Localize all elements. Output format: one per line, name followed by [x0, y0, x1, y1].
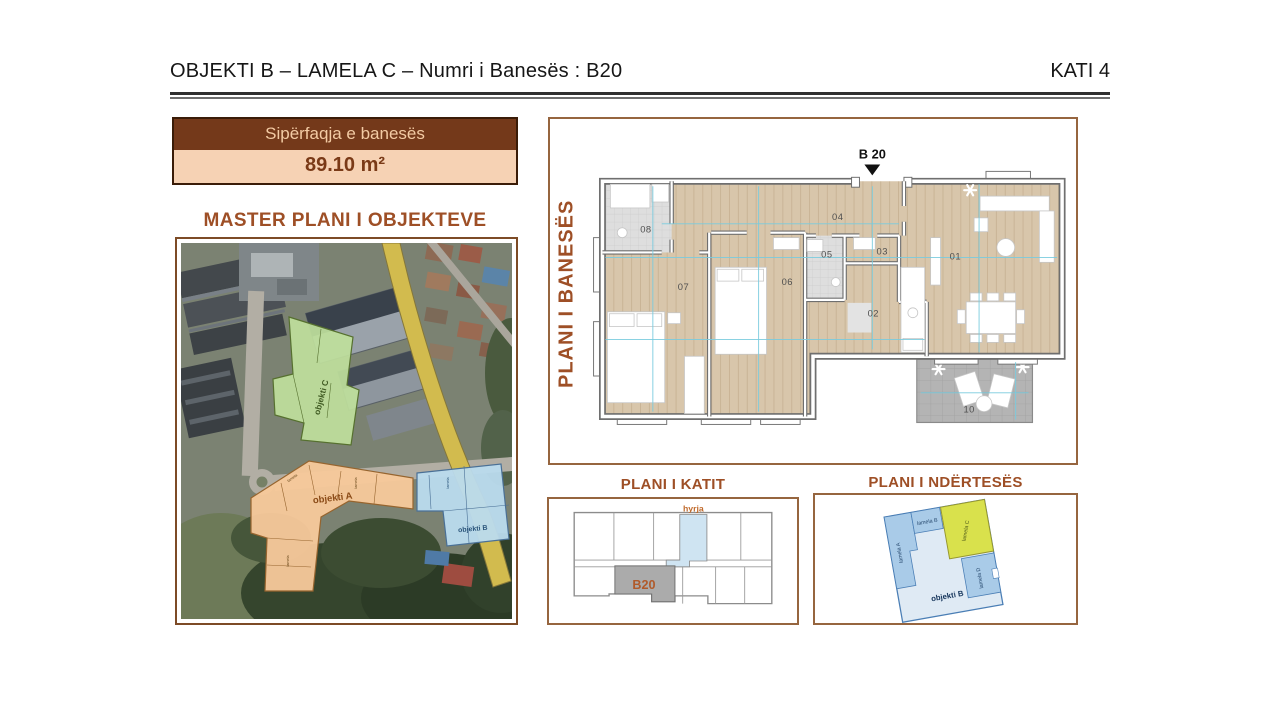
room-label-02: 02	[868, 308, 879, 319]
map-microlabel-lamela: lamela	[446, 477, 450, 489]
floor-label: KATI 4	[1040, 60, 1110, 83]
unit-marker-label: B 20	[859, 147, 886, 162]
room-label-04: 04	[832, 211, 843, 222]
room-label-10: 10	[963, 404, 974, 415]
floor-plan-drawing: hyrja B20	[549, 499, 797, 623]
header-rule-thin	[170, 97, 1110, 99]
room-label-07: 07	[678, 281, 689, 292]
area-box-label: Sipërfaqja e banesës	[174, 119, 516, 150]
room-label-01: 01	[950, 250, 961, 261]
header-rule-thick	[170, 92, 1110, 95]
unit-b20-label: B20	[632, 578, 655, 592]
floor-plan-title: PLANI I KATIT	[547, 476, 799, 493]
room-label-03: 03	[876, 245, 887, 256]
satellite-map: objekti C objekti A lamela lamela lamela…	[181, 243, 512, 619]
entrance-arrow-icon	[864, 164, 880, 175]
room-label-08: 08	[640, 224, 651, 235]
map-microlabel-lamela: lamela	[354, 477, 358, 489]
floor-plan-panel: hyrja B20	[547, 497, 799, 625]
building-plan-title: PLANI I NDËRTESËS	[813, 474, 1078, 491]
entrance-label: hyrja	[683, 504, 704, 514]
room-label-06: 06	[782, 276, 793, 287]
map-microlabel-lamela: lamela	[286, 555, 290, 567]
page-title: OBJEKTI B – LAMELA C – Numri i Banesës :…	[170, 60, 622, 83]
master-plan-title: MASTER PLANI I OBJEKTEVE	[172, 210, 518, 232]
building-plan-drawing: lamela A lamela B lamela C lamela D obje…	[815, 495, 1076, 623]
apartment-plan-panel: PLANI I BANESËS	[548, 117, 1078, 465]
room-label-05: 05	[821, 248, 832, 259]
area-box-value: 89.10 m²	[174, 150, 516, 183]
building-plan-panel: lamela A lamela B lamela C lamela D obje…	[813, 493, 1078, 625]
apartment-floor-plan: 01 02 03 04 05 06 07 08 10 B 20	[550, 119, 1076, 463]
building-plan-group: lamela A lamela B lamela C lamela D obje…	[884, 499, 1004, 622]
unit-entrance-marker: B 20	[859, 147, 886, 176]
plan-sheet-page: OBJEKTI B – LAMELA C – Numri i Banesës :…	[0, 0, 1280, 720]
master-plan-map: objekti C objekti A lamela lamela lamela…	[175, 237, 518, 625]
area-info-box: Sipërfaqja e banesës 89.10 m²	[172, 117, 518, 185]
